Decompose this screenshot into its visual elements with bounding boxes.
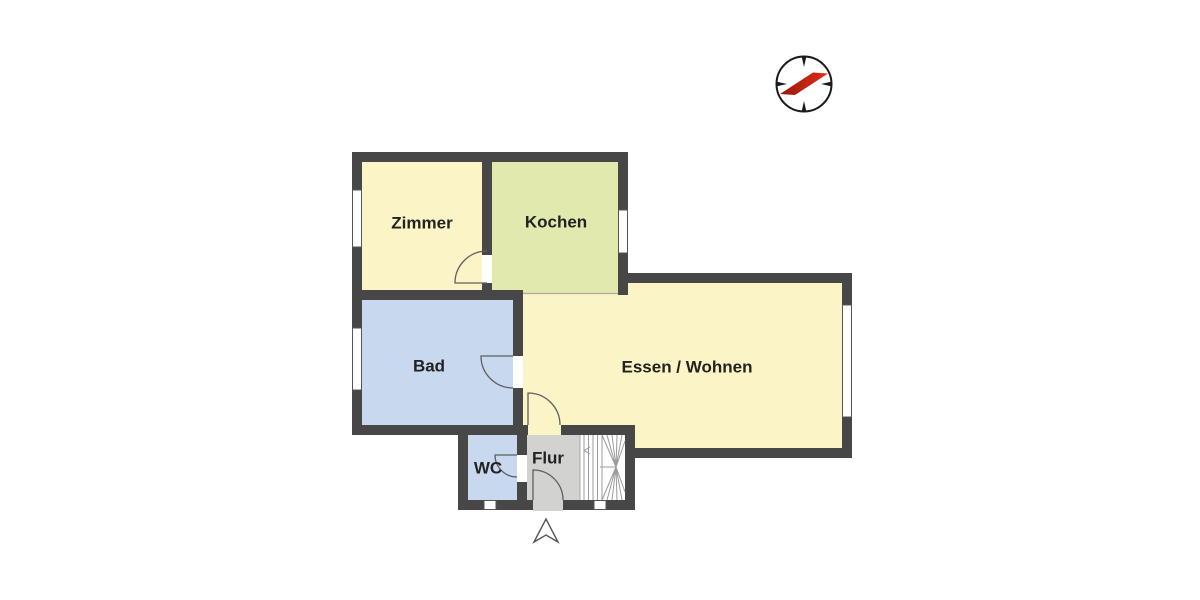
room-label-essen-wohnen: Essen / Wohnen (622, 357, 753, 376)
compass-tick-east (821, 82, 832, 87)
room-label-kochen: Kochen (525, 212, 587, 231)
wall-wc-flur-stub (517, 482, 527, 500)
compass-tick-west (776, 82, 787, 87)
wall-zimmer-kochen-divider (482, 162, 492, 255)
compass-tick-south (802, 101, 807, 112)
wall-stairs-top (561, 425, 635, 435)
window-bad-left (353, 328, 362, 390)
wall-wc-left (458, 425, 468, 510)
room-flur (527, 435, 580, 500)
room-label-zimmer: Zimmer (391, 213, 453, 232)
compass-tick-north (802, 56, 807, 67)
room-label-wc: WC (474, 458, 502, 477)
entrance-arrow-icon (534, 519, 558, 542)
wall-top (352, 152, 628, 162)
window-stairs-bottom (594, 501, 606, 510)
wall-bad-bottom (352, 425, 528, 435)
wall-stairs-right (625, 425, 635, 510)
wall-essen-top (618, 273, 852, 283)
wall-essen-bottom (625, 448, 852, 458)
room-label-bad: Bad (413, 356, 445, 375)
floor-plan: Zimmer Kochen Bad Essen / Wohnen WC Flur (0, 0, 1200, 600)
wall-wc-flur-upper (517, 435, 527, 455)
window-kochen-right (619, 210, 628, 253)
compass-rose-icon (776, 56, 832, 112)
window-essen-right (843, 305, 852, 417)
window-wc-bottom (484, 501, 496, 510)
compass-needle (780, 73, 828, 96)
entrance-opening (533, 500, 563, 511)
room-label-flur: Flur (532, 448, 564, 467)
wall-bad-right-upper (513, 300, 523, 356)
window-zimmer-left (353, 190, 362, 247)
wall-zimmer-bad (352, 290, 523, 300)
